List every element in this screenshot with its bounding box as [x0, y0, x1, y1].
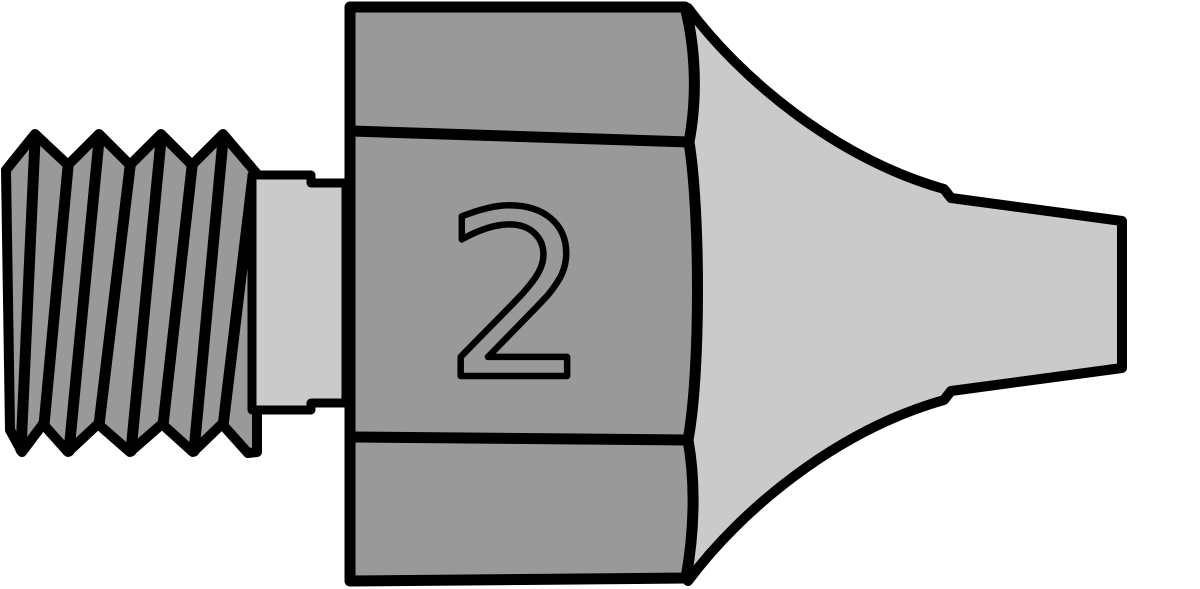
shank-section: [252, 175, 346, 410]
hex-facet-line-lower: [352, 437, 688, 440]
thread-section: [6, 134, 257, 453]
nozzle-cone: [688, 8, 1122, 581]
hex-body: 2: [350, 7, 698, 581]
product-illustration: 2: [0, 0, 1200, 589]
desoldering-tip-drawing: 2: [0, 0, 1200, 589]
hex-size-marking: 2: [444, 164, 590, 431]
